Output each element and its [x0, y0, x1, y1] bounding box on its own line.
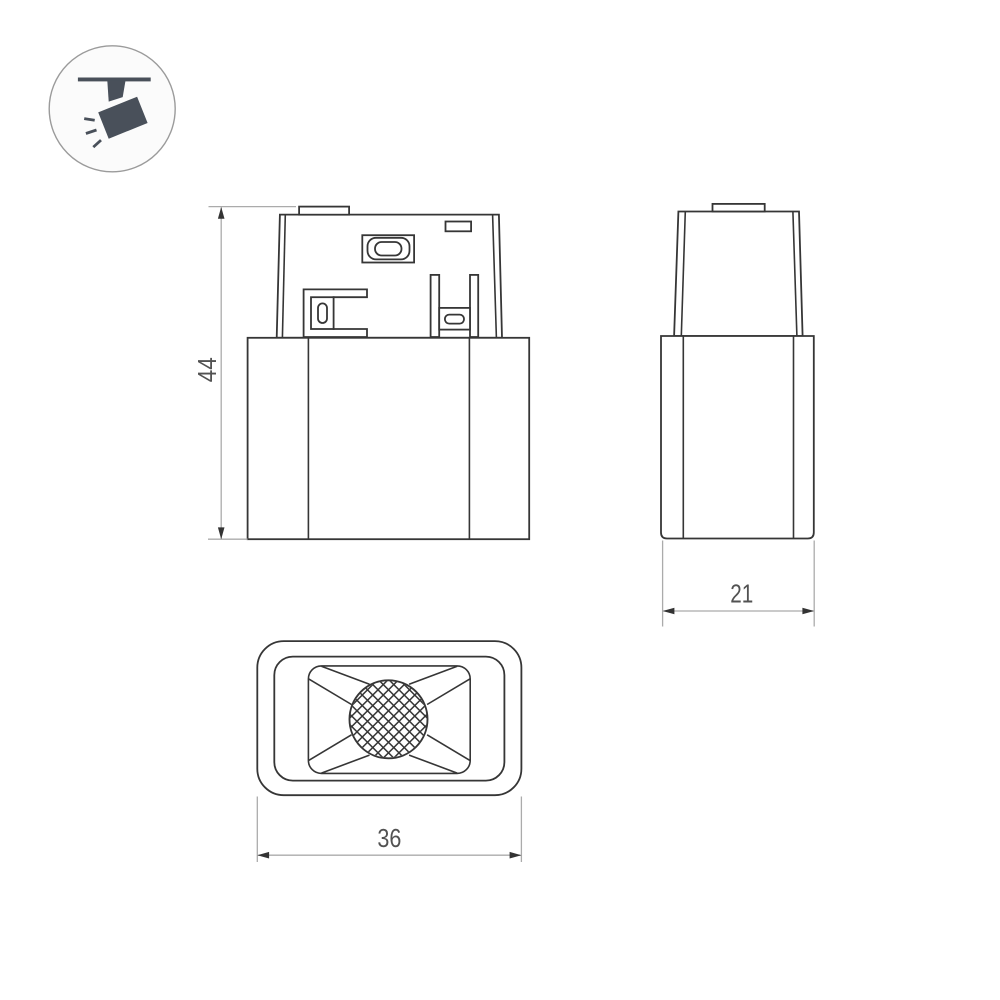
svg-text:44: 44 — [194, 357, 222, 382]
svg-text:36: 36 — [377, 825, 401, 853]
svg-text:21: 21 — [730, 580, 753, 608]
